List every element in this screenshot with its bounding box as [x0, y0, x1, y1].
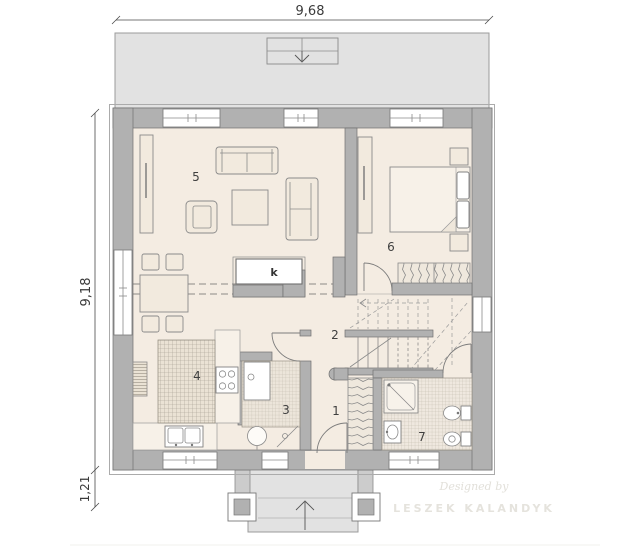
fridge-icon — [133, 362, 147, 396]
entrance-porch — [228, 462, 380, 532]
dining-table-icon — [140, 275, 188, 312]
washstand-icon — [244, 362, 270, 400]
chair-icon — [142, 254, 159, 270]
coffee-table-icon — [232, 190, 268, 225]
chimney-icon — [267, 38, 338, 64]
stove-icon — [216, 367, 238, 393]
window-kitchen-bottom — [163, 452, 217, 469]
dimension-left-label: 9,18 — [79, 278, 94, 307]
floor-plan-page: 9,68 9,18 1,21 — [0, 0, 638, 556]
window-stair-right — [473, 297, 491, 332]
roof-overhang — [115, 33, 489, 108]
nightstand-icon — [450, 148, 468, 165]
watermark-line1: Designed by — [439, 480, 510, 493]
window-toilet-bottom — [262, 452, 288, 469]
window-living-top-small — [284, 109, 318, 127]
chair-icon — [166, 254, 183, 270]
chair-icon — [142, 316, 159, 332]
window-bedroom-top — [390, 109, 443, 127]
hall-wardrobe-icon — [348, 378, 373, 450]
room-label-staircase: 2 — [331, 328, 339, 342]
nightstand-icon — [450, 234, 468, 251]
bed-icon — [390, 167, 470, 232]
window-living-top — [163, 109, 220, 127]
bathroom: 7 — [382, 378, 472, 450]
kitchen-sink-icon — [165, 426, 203, 447]
room-label-bedroom: 6 — [387, 240, 395, 254]
fireplace: k — [233, 257, 305, 297]
room-label-hall: 1 — [332, 404, 340, 418]
kitchen-floor-hatch — [158, 340, 215, 423]
watermark-line2: LESZEK KALANDYK — [393, 502, 555, 515]
shower-icon — [384, 380, 418, 413]
toilet-icon — [444, 406, 472, 420]
window-bathroom-bottom — [389, 452, 439, 469]
armchair-large-icon — [286, 178, 318, 240]
room-label-toilet: 3 — [282, 403, 290, 417]
porch-column-right — [352, 493, 380, 521]
bedroom-cabinet-icon — [358, 137, 372, 233]
window-dining-left — [114, 250, 132, 335]
bidet-icon — [444, 432, 472, 446]
porch-column-left — [228, 493, 256, 521]
room-label-kitchen: 4 — [193, 369, 201, 383]
room-label-bathroom: 7 — [418, 430, 426, 444]
bedroom-wardrobe-icon — [398, 263, 470, 283]
floor-plan-canvas: 9,68 9,18 1,21 — [0, 0, 638, 556]
bathroom-sink-icon — [384, 421, 401, 443]
entrance-opening — [305, 451, 345, 469]
room-label-living: 5 — [192, 170, 200, 184]
dimension-top-label: 9,68 — [296, 4, 325, 19]
dimension-porch-label: 1,21 — [78, 476, 92, 503]
sofa-icon — [216, 147, 278, 174]
cabinet-icon — [140, 135, 153, 233]
armchair-small-icon — [186, 201, 217, 233]
fireplace-label: k — [270, 266, 278, 279]
chair-icon — [166, 316, 183, 332]
